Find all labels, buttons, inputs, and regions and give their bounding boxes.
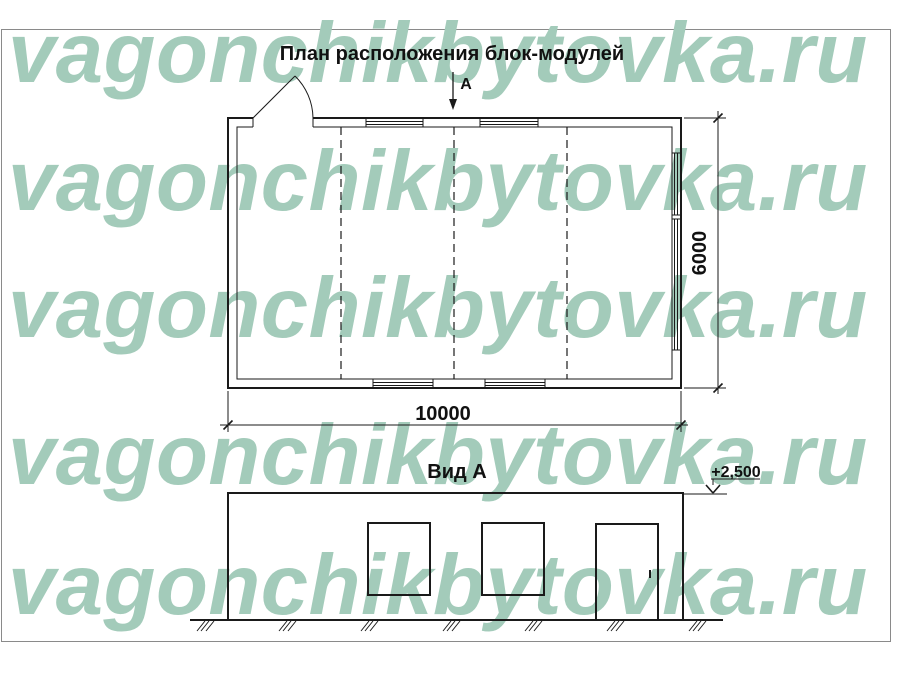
plan-window-bottom-2 <box>485 379 545 388</box>
door-swing-arc <box>295 76 313 118</box>
facade-door <box>596 524 658 620</box>
dimension-width-value: 6000 <box>689 231 711 276</box>
facade-window-1 <box>368 523 430 595</box>
section-mark: А <box>449 72 472 110</box>
dimension-width: 6000 <box>684 111 726 394</box>
facade-window-2 <box>482 523 544 595</box>
dimension-length: 10000 <box>220 391 688 432</box>
plan-window-top-1 <box>366 118 423 127</box>
section-label: А <box>460 76 472 93</box>
level-mark: +2,500 <box>683 464 761 494</box>
floor-plan: План расположения блок-модулей <box>220 43 726 432</box>
plan-title: План расположения блок-модулей <box>280 43 624 65</box>
door-jambs <box>253 118 313 127</box>
plan-window-right-1 <box>672 153 681 215</box>
elevation-view: Вид А +2,500 <box>190 461 761 631</box>
door-leaf <box>253 76 295 118</box>
dimension-length-value: 10000 <box>415 403 471 425</box>
technical-drawing: План расположения блок-модулей <box>0 0 900 675</box>
plan-window-top-2 <box>480 118 538 127</box>
facade-outline <box>228 493 683 620</box>
elevation-title: Вид А <box>427 461 486 483</box>
level-mark-value: +2,500 <box>711 464 760 481</box>
drawing-sheet: vagonchikbytovka.ru vagonchikbytovka.ru … <box>0 0 900 675</box>
plan-window-bottom-1 <box>373 379 433 388</box>
module-partition-lines <box>341 127 567 379</box>
plan-window-right-2 <box>672 219 681 350</box>
ground-hatching <box>197 621 706 631</box>
